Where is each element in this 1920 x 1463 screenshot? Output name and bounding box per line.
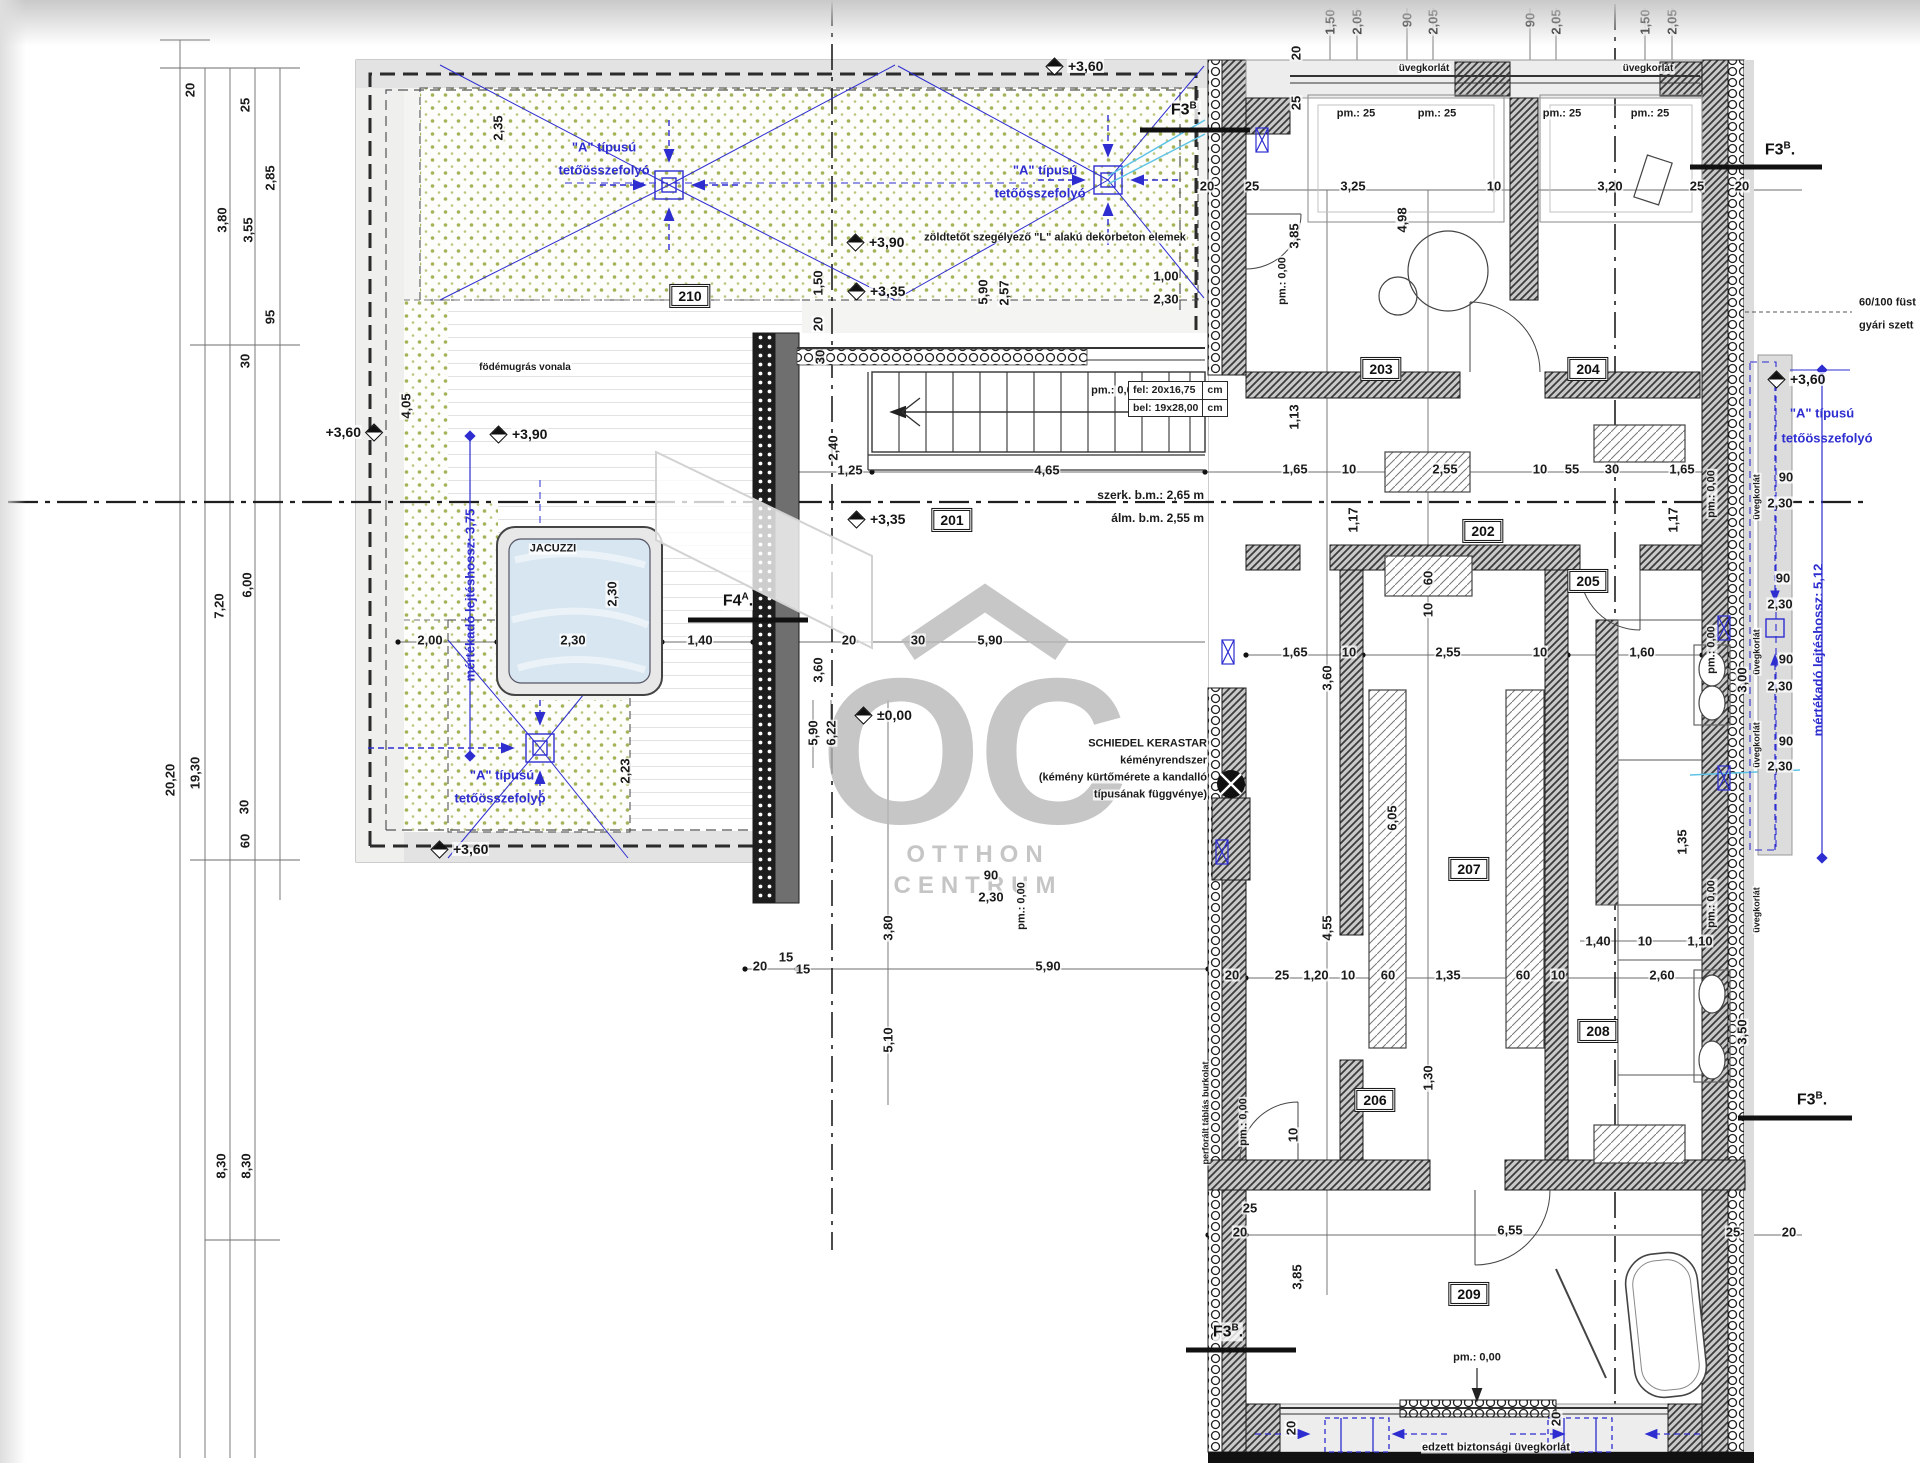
annotation-label: pm.: 0,00 — [1707, 879, 1718, 929]
dim-label: 4,65 — [1033, 464, 1060, 477]
dim-label: 3,55 — [242, 216, 255, 243]
dim-label: 90 — [1524, 12, 1537, 28]
dim-label: 2,40 — [827, 434, 840, 461]
dim-label: 1,25 — [836, 464, 863, 477]
elevation-value: +3,60 — [1789, 372, 1826, 386]
dim-label: 25 — [1244, 180, 1260, 193]
annotation-label: tetőösszefolyó — [1780, 432, 1873, 445]
annotation-label: szerk. b.m.: 2,65 m — [1096, 489, 1205, 501]
dim-label: 1,10 — [1686, 935, 1713, 948]
dim-label: 10 — [1341, 463, 1357, 476]
dim-label: 6,00 — [241, 571, 254, 598]
level-diamond-icon — [489, 425, 507, 443]
annotation-label: födémugrás vonala — [478, 363, 572, 373]
elevation-marker: ±0,00 — [857, 708, 913, 722]
dim-label: 20 — [1224, 969, 1240, 982]
annotation-label: pm.: 25 — [1542, 109, 1583, 120]
dim-label: 2,55 — [1434, 646, 1461, 659]
dim-label: 20 — [1781, 1226, 1797, 1239]
dim-label: 60 — [1380, 969, 1396, 982]
annotation-label: edzett biztonsági üvegkorlát — [1421, 1443, 1571, 1454]
dim-label: 1,65 — [1281, 463, 1308, 476]
annotation-label: "A" típusú — [1012, 164, 1078, 177]
dim-label: 2,30 — [1766, 680, 1793, 693]
room-label-205: 205 — [1567, 569, 1608, 593]
annotation-label: mértékadó lejtéshossz: 5,12 — [1812, 563, 1825, 738]
dim-label: 1,50 — [812, 269, 825, 296]
dim-label: 20 — [812, 316, 825, 332]
level-diamond-icon — [847, 510, 865, 528]
elevation-value: ±0,00 — [876, 708, 913, 722]
dim-label: 3,50 — [1736, 1018, 1749, 1045]
dim-label: 25 — [1725, 1226, 1741, 1239]
elevation-value: +3,35 — [869, 284, 906, 298]
dim-label: 30 — [814, 349, 827, 365]
section-marker-F3B: F3B. — [1797, 1090, 1827, 1109]
dim-label: 20 — [1550, 1411, 1563, 1427]
level-diamond-icon — [847, 282, 865, 300]
dim-label: 4,05 — [400, 392, 413, 419]
level-diamond-icon — [430, 840, 448, 858]
elevation-marker: +3,60 — [325, 425, 381, 439]
dim-label: 1,40 — [1584, 935, 1611, 948]
dim-label: 1,60 — [1628, 646, 1655, 659]
annotation-label: típusának függvénye) — [1093, 790, 1208, 801]
dim-label: 30 — [910, 634, 926, 647]
dim-label: 3,80 — [216, 206, 229, 233]
dim-label: 20 — [841, 634, 857, 647]
annotation-label: álm. b.m. 2,55 m — [1110, 512, 1205, 524]
elevation-value: +3,60 — [452, 842, 489, 856]
dim-label: 1,65 — [1281, 646, 1308, 659]
dim-label: 10 — [1422, 602, 1435, 618]
dim-label: 2,30 — [1152, 293, 1179, 306]
dim-label: 3,80 — [882, 914, 895, 941]
elevation-marker: +3,60 — [433, 842, 489, 856]
elevation-value: +3,90 — [511, 427, 548, 441]
annotation-label: pm.: 0,00 — [1707, 469, 1718, 519]
annotation-label: üvegkorlát — [1753, 628, 1762, 676]
annotation-label: perforált táblás burkolat — [1202, 1060, 1211, 1165]
dim-label: 1,50 — [1324, 8, 1337, 35]
room-label-202: 202 — [1462, 519, 1503, 543]
dim-label: 1,50 — [1639, 8, 1652, 35]
dim-label: 95 — [264, 309, 277, 325]
dim-label: 6,55 — [1496, 1224, 1523, 1237]
annotation-label: pm.: 25 — [1630, 109, 1671, 120]
dim-label: 55 — [1564, 463, 1580, 476]
dim-label: 1,30 — [1422, 1064, 1435, 1091]
level-diamond-icon — [854, 706, 872, 724]
dim-label: 5,90 — [977, 278, 990, 305]
dim-label: 20 — [1232, 1226, 1248, 1239]
annotation-label: mértékadó lejtéshossz: 3,75 — [464, 508, 477, 683]
dim-label: 10 — [1550, 969, 1566, 982]
elevation-value: +3,90 — [868, 235, 905, 249]
annotation-label: (kémény kürtőmérete a kandalló — [1038, 773, 1208, 784]
dim-label: 15 — [778, 951, 794, 964]
dim-label: 3,00 — [1736, 666, 1749, 693]
room-label-207: 207 — [1448, 857, 1489, 881]
stair-note-unit1: cm — [1202, 382, 1226, 399]
dim-label: 20 — [184, 82, 197, 98]
dim-label: 20 — [1734, 180, 1750, 193]
level-diamond-icon — [1767, 370, 1785, 388]
dim-label: 60 — [239, 833, 252, 849]
annotation-label: tetőösszefolyó — [453, 792, 546, 805]
elevation-value: +3,60 — [1067, 59, 1104, 73]
level-diamond-icon — [365, 423, 383, 441]
annotation-label: pm.: 25 — [1417, 109, 1458, 120]
dim-label: 2,30 — [1766, 760, 1793, 773]
level-diamond-icon — [1045, 57, 1063, 75]
annotation-label: üvegkorlát — [1753, 886, 1762, 934]
room-label-208: 208 — [1577, 1019, 1618, 1043]
dim-label: 3,25 — [1339, 180, 1366, 193]
watermark-oc: OC — [820, 648, 1124, 856]
dim-label: 6,05 — [1386, 804, 1399, 831]
dim-label: 25 — [1290, 95, 1303, 111]
elevation-marker: +3,60 — [1770, 372, 1826, 386]
dim-label: 20 — [1199, 180, 1215, 193]
dim-label: 5,90 — [1034, 960, 1061, 973]
dim-label: 2,00 — [416, 634, 443, 647]
dim-label: 7,20 — [213, 592, 226, 619]
stair-note-box: fel: 20x16,75 cm bel: 19x28,00 cm — [1128, 381, 1228, 417]
dim-label: 6,22 — [825, 719, 838, 746]
elevation-marker: +3,35 — [850, 512, 906, 526]
annotation-label: üvegkorlát — [1398, 64, 1451, 74]
stair-note-bel: bel: 19x28,00 — [1129, 399, 1202, 417]
annotation-label: pm.: 0,00 — [1707, 625, 1718, 675]
dim-label: 2,23 — [619, 757, 632, 784]
dim-label: 90 — [1778, 471, 1794, 484]
dim-label: 90 — [1401, 12, 1414, 28]
dim-label: 30 — [1604, 463, 1620, 476]
dim-label: 1,35 — [1676, 828, 1689, 855]
elevation-value: +3,60 — [325, 425, 362, 439]
dim-label: 8,30 — [215, 1152, 228, 1179]
dim-label: 20 — [752, 960, 768, 973]
elevation-marker: +3,60 — [1048, 59, 1104, 73]
annotation-label: "A" típusú — [571, 141, 637, 154]
dim-label: 10 — [1287, 1127, 1300, 1143]
dim-label: 2,05 — [1666, 8, 1679, 35]
dim-label: 90 — [1778, 735, 1794, 748]
dim-label: 60 — [1515, 969, 1531, 982]
annotation-label: "A" típusú — [469, 769, 535, 782]
dim-label: 2,35 — [492, 114, 505, 141]
elevation-marker: +3,90 — [849, 235, 905, 249]
dim-label: 10 — [1341, 646, 1357, 659]
dim-label: 60 — [1422, 570, 1435, 586]
elevation-value: +3,35 — [869, 512, 906, 526]
dim-label: 15 — [795, 963, 811, 976]
dim-label: 1,13 — [1288, 403, 1301, 430]
annotation-label: tetőösszefolyó — [557, 164, 650, 177]
dim-label: 3,85 — [1288, 222, 1301, 249]
dim-label: 19,30 — [189, 756, 202, 791]
annotation-label: tetőösszefolyó — [993, 187, 1086, 200]
dim-label: 20 — [1285, 1420, 1298, 1436]
annotation-label: gyári szett — [1858, 321, 1914, 332]
interior-floor — [1246, 98, 1702, 1404]
room-label-204: 204 — [1567, 357, 1608, 381]
dim-label: 1,65 — [1668, 463, 1695, 476]
level-diamond-icon — [846, 233, 864, 251]
elevation-marker: +3,35 — [850, 284, 906, 298]
elevation-marker: +3,90 — [492, 427, 548, 441]
annotation-label: pm.: 0,00 — [1017, 881, 1028, 931]
section-marker-F4A: F4A. — [723, 591, 753, 610]
dim-label: 10 — [1486, 180, 1502, 193]
dim-label: 25 — [1689, 180, 1705, 193]
dim-label: 2,30 — [1766, 497, 1793, 510]
annotation-label: pm.: 25 — [1336, 109, 1377, 120]
dim-label: 1,20 — [1302, 969, 1329, 982]
dim-label: 10 — [1532, 646, 1548, 659]
dim-label: 2,30 — [559, 634, 586, 647]
annotation-label: "A" típusú — [1789, 407, 1855, 420]
room-label-210: 210 — [669, 284, 710, 308]
dim-label: 30 — [239, 353, 252, 369]
annotation-label: zöldtetőt szegélyező "L" alakú dekorbeto… — [923, 233, 1187, 244]
stair-note-unit2: cm — [1202, 399, 1226, 417]
dim-label: 5,90 — [976, 634, 1003, 647]
room-label-203: 203 — [1360, 357, 1401, 381]
dim-label: 1,40 — [686, 634, 713, 647]
dim-label: 25 — [239, 97, 252, 113]
dim-label: 2,57 — [998, 279, 1011, 306]
dim-label: 1,35 — [1434, 969, 1461, 982]
annotation-label: üvegkorlát — [1753, 473, 1762, 521]
dim-label: 5,10 — [882, 1026, 895, 1053]
section-marker-F3B: F3B. — [1171, 100, 1201, 119]
dim-label: 1,17 — [1347, 506, 1360, 533]
dim-label: 90 — [983, 869, 999, 882]
annotation-label: pm.: 0,00 — [1278, 256, 1289, 306]
annotation-label: kéményrendszer — [1119, 756, 1208, 767]
dim-label: 2,05 — [1550, 8, 1563, 35]
dim-label: 4,98 — [1396, 206, 1409, 233]
dim-label: 4,55 — [1321, 914, 1334, 941]
section-marker-F3B: F3B. — [1213, 1322, 1243, 1341]
dim-label: 1,17 — [1667, 506, 1680, 533]
annotation-label: üvegkorlát — [1753, 721, 1762, 769]
dim-label: 2,55 — [1431, 463, 1458, 476]
annotation-label: JACUZZI — [529, 544, 577, 555]
dim-label: 2,30 — [977, 891, 1004, 904]
section-marker-F3B: F3B. — [1765, 140, 1795, 159]
annotation-label: 60/100 füst — [1858, 298, 1917, 309]
stair-note-fel: fel: 20x16,75 — [1129, 382, 1202, 399]
annotation-label: pm.: 0,00 — [1452, 1353, 1502, 1364]
floor-plan-canvas: OC OTTHON CENTRUM 20252,853,803,5595307,… — [0, 0, 1920, 1463]
dim-label: 10 — [1637, 935, 1653, 948]
dim-label: 2,30 — [1766, 598, 1793, 611]
dim-label: 90 — [1775, 572, 1791, 585]
room-label-206: 206 — [1354, 1088, 1395, 1112]
watermark-line1: OTTHON — [906, 841, 1049, 869]
dim-label: 25 — [1274, 969, 1290, 982]
dim-label: 1,00 — [1152, 270, 1179, 283]
dim-label: 2,60 — [1648, 969, 1675, 982]
dim-label: 3,20 — [1596, 180, 1623, 193]
dim-label: 8,30 — [240, 1152, 253, 1179]
annotation-label: pm.: 0,00 — [1239, 1097, 1250, 1147]
dim-label: 20,20 — [164, 763, 177, 798]
dim-label: 3,60 — [1321, 664, 1334, 691]
room-label-209: 209 — [1448, 1282, 1489, 1306]
dim-label: 3,85 — [1291, 1263, 1304, 1290]
dim-label: 90 — [1778, 653, 1794, 666]
dim-label: 10 — [1340, 969, 1356, 982]
dim-label: 10 — [1532, 463, 1548, 476]
dim-label: 25 — [1242, 1202, 1258, 1215]
dim-label: 20 — [1290, 45, 1303, 61]
jacuzzi — [497, 527, 662, 695]
annotation-label: üvegkorlát — [1622, 64, 1675, 74]
room-label-201: 201 — [931, 508, 972, 532]
dim-label: 3,60 — [812, 656, 825, 683]
dim-label: 2,05 — [1351, 8, 1364, 35]
dim-label: 5,90 — [807, 719, 820, 746]
dim-label: 2,30 — [606, 580, 619, 607]
annotation-label: SCHIEDEL KERASTAR — [1087, 739, 1208, 750]
dim-label: 2,05 — [1427, 8, 1440, 35]
dim-label: 2,85 — [264, 164, 277, 191]
dim-label: 30 — [238, 799, 251, 815]
